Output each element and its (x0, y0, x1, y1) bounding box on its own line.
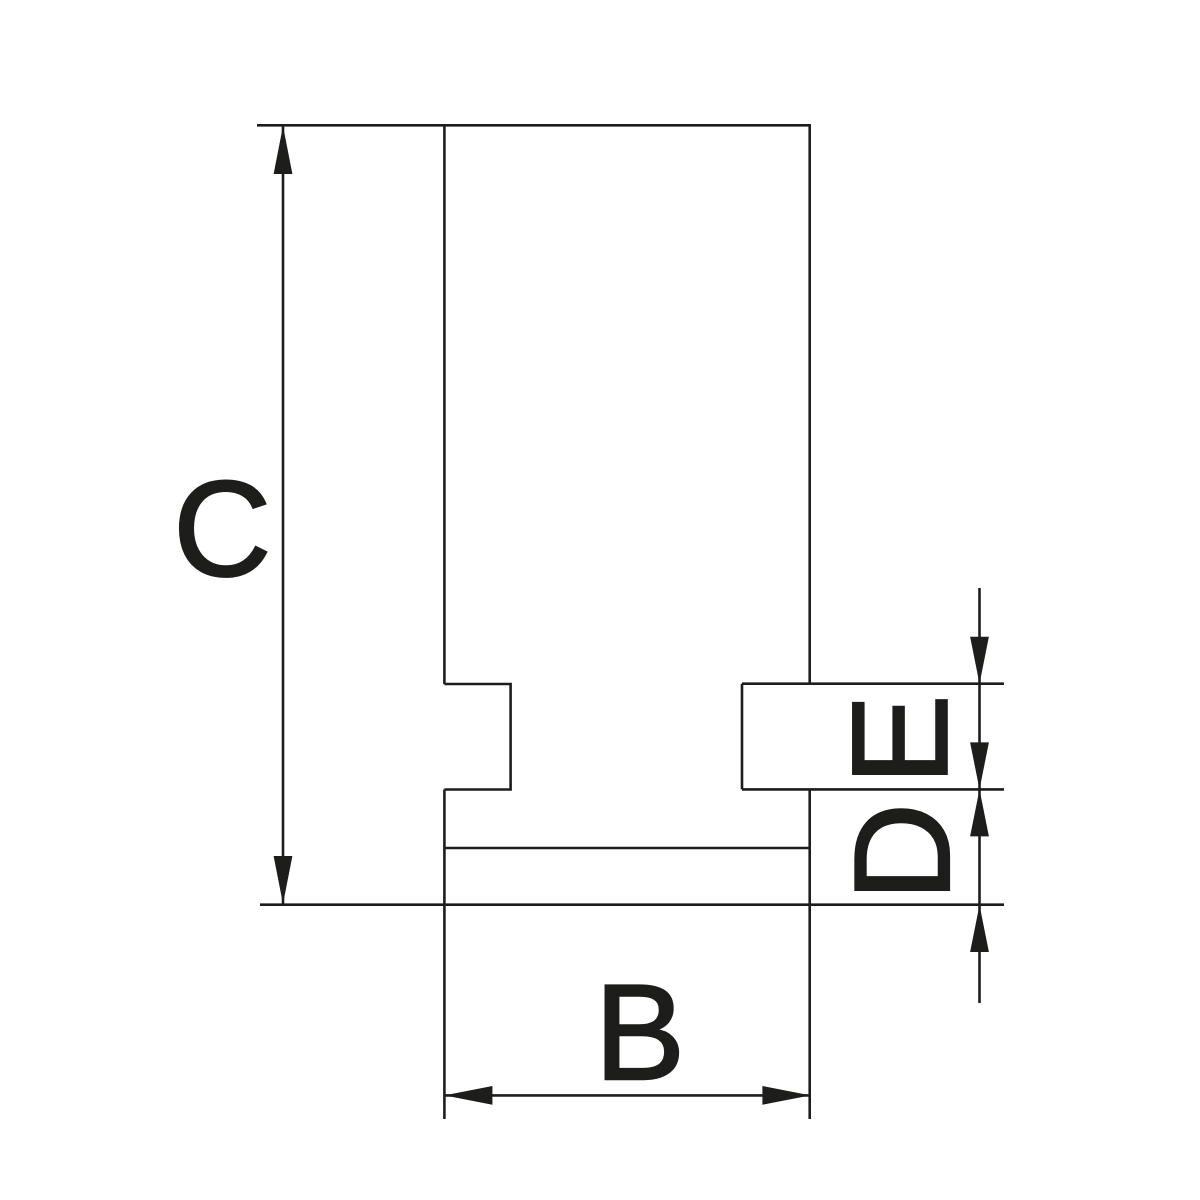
svg-text:D: D (826, 803, 978, 901)
svg-text:B: B (594, 956, 685, 1108)
svg-text:E: E (824, 694, 976, 785)
svg-text:C: C (173, 453, 271, 605)
